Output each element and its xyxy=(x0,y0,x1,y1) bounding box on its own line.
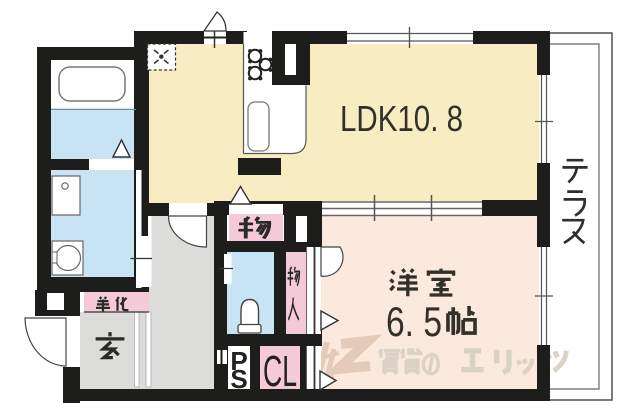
svg-text:LDK10. 8: LDK10. 8 xyxy=(340,98,463,139)
svg-text:6. 5: 6. 5 xyxy=(386,298,442,345)
svg-text:S: S xyxy=(230,364,247,394)
svg-text:CL: CL xyxy=(263,347,297,396)
